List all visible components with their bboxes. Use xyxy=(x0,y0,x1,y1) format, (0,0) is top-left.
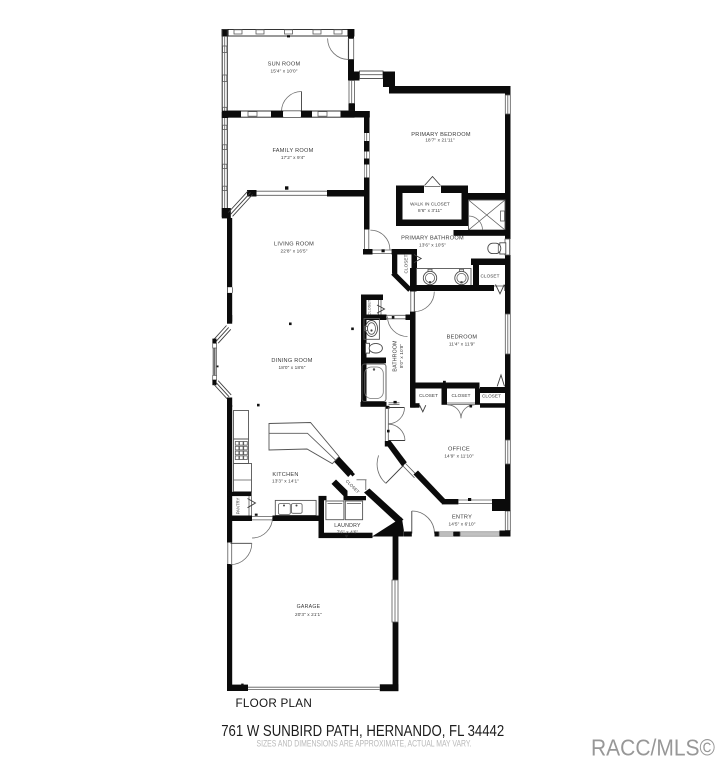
svg-text:13'6" x 10'5": 13'6" x 10'5" xyxy=(419,242,446,247)
svg-text:ENTRY: ENTRY xyxy=(452,515,472,521)
svg-text:8'6" x 3'11": 8'6" x 3'11" xyxy=(418,208,442,213)
svg-text:FAMILY ROOM: FAMILY ROOM xyxy=(272,148,313,154)
svg-text:PANTRY: PANTRY xyxy=(236,497,241,514)
svg-text:15'4" x 10'0": 15'4" x 10'0" xyxy=(270,69,297,74)
svg-text:CLOSET: CLOSET xyxy=(482,394,501,399)
svg-text:OFFICE: OFFICE xyxy=(448,447,470,453)
svg-text:SUN ROOM: SUN ROOM xyxy=(268,62,301,68)
svg-text:8'0" x 10'8": 8'0" x 10'8" xyxy=(399,344,404,369)
svg-text:KITCHEN: KITCHEN xyxy=(272,472,298,478)
svg-text:CLOSET: CLOSET xyxy=(367,299,372,315)
svg-text:PRIMARY BATHROOM: PRIMARY BATHROOM xyxy=(401,236,464,242)
svg-text:CLOSET: CLOSET xyxy=(404,254,409,273)
svg-text:18'0" x 18'6": 18'0" x 18'6" xyxy=(278,365,305,370)
svg-text:14'9" x 11'10": 14'9" x 11'10" xyxy=(444,454,474,459)
svg-text:13'3" x 14'1": 13'3" x 14'1" xyxy=(272,478,299,483)
svg-text:17'2" x 9'4": 17'2" x 9'4" xyxy=(281,155,306,160)
svg-text:CLOSET: CLOSET xyxy=(452,393,471,398)
svg-text:LAUNDRY: LAUNDRY xyxy=(334,523,361,529)
svg-text:RACC/MLS©: RACC/MLS© xyxy=(591,735,715,761)
svg-text:CLOSET: CLOSET xyxy=(419,393,438,398)
svg-text:18'7" x 21'11": 18'7" x 21'11" xyxy=(425,138,455,143)
svg-text:WALK IN CLOSET: WALK IN CLOSET xyxy=(410,201,450,206)
svg-text:22'8" x 16'5": 22'8" x 16'5" xyxy=(280,249,307,254)
svg-text:LIVING ROOM: LIVING ROOM xyxy=(274,242,314,248)
svg-text:BEDROOM: BEDROOM xyxy=(447,335,478,341)
svg-text:7'6" x 4'6": 7'6" x 4'6" xyxy=(337,530,359,535)
svg-text:14'5" x 6'10": 14'5" x 6'10" xyxy=(448,522,475,527)
svg-text:20'3" x 21'1": 20'3" x 21'1" xyxy=(295,612,322,617)
svg-text:SIZES AND DIMENSIONS ARE APPRO: SIZES AND DIMENSIONS ARE APPROXIMATE, AC… xyxy=(257,738,472,748)
svg-text:DINING ROOM: DINING ROOM xyxy=(271,358,312,364)
svg-text:CLOSET: CLOSET xyxy=(481,274,500,279)
svg-text:BATHROOM: BATHROOM xyxy=(393,340,399,371)
svg-text:FLOOR PLAN: FLOOR PLAN xyxy=(236,697,313,710)
svg-text:11'4" x 11'9": 11'4" x 11'9" xyxy=(449,342,476,347)
svg-text:GARAGE: GARAGE xyxy=(297,604,321,610)
